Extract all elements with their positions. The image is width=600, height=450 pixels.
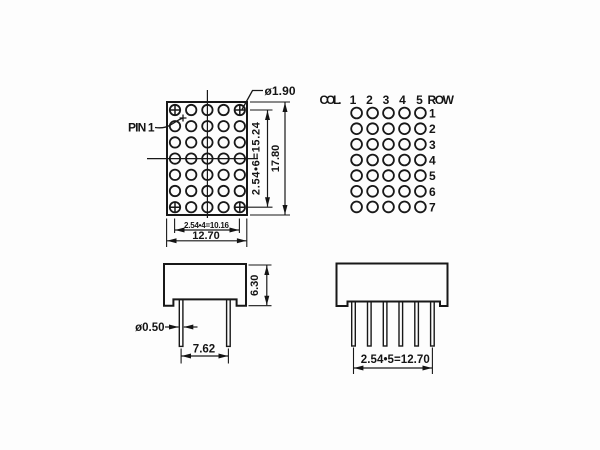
svg-text:ø0.50: ø0.50 bbox=[135, 322, 164, 334]
svg-text:1: 1 bbox=[429, 107, 436, 121]
svg-text:5: 5 bbox=[429, 169, 436, 183]
svg-text:2: 2 bbox=[366, 93, 373, 107]
svg-text:17.80: 17.80 bbox=[270, 145, 282, 173]
svg-text:5: 5 bbox=[416, 93, 423, 107]
svg-text:3: 3 bbox=[429, 138, 436, 152]
svg-text:12.70: 12.70 bbox=[192, 230, 220, 242]
svg-text:COL.: COL. bbox=[320, 93, 342, 107]
svg-text:2: 2 bbox=[429, 122, 436, 136]
svg-text:7.62: 7.62 bbox=[193, 344, 215, 356]
svg-text:7: 7 bbox=[429, 200, 436, 214]
svg-text:6.30: 6.30 bbox=[249, 275, 261, 296]
svg-text:2.54•4=10.16: 2.54•4=10.16 bbox=[184, 221, 230, 230]
svg-text:1: 1 bbox=[350, 93, 357, 107]
svg-text:3: 3 bbox=[383, 93, 390, 107]
svg-text:6: 6 bbox=[429, 185, 436, 199]
svg-text:ø1.90: ø1.90 bbox=[265, 84, 296, 98]
svg-text:4: 4 bbox=[429, 154, 436, 168]
svg-text:ROW: ROW bbox=[428, 93, 455, 107]
svg-text:4: 4 bbox=[399, 93, 406, 107]
svg-text:PIN 1: PIN 1 bbox=[128, 121, 155, 135]
svg-text:2.54•6=15.24: 2.54•6=15.24 bbox=[251, 121, 263, 195]
svg-text:2.54•5=12.70: 2.54•5=12.70 bbox=[361, 354, 430, 366]
